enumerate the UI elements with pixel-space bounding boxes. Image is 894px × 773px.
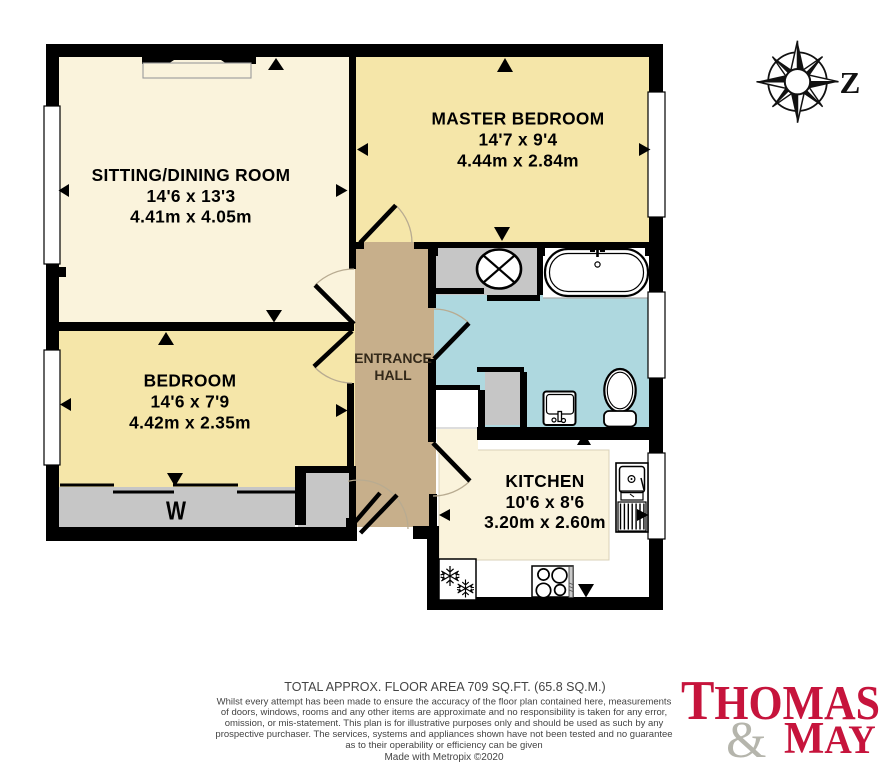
svg-text:MAY: MAY	[784, 714, 876, 763]
svg-text:MASTER BEDROOM: MASTER BEDROOM	[432, 109, 605, 129]
svg-text:KITCHEN: KITCHEN	[505, 471, 584, 491]
svg-text:3.20m x 2.60m: 3.20m x 2.60m	[484, 512, 606, 532]
svg-text:Made with Metropix ©2020: Made with Metropix ©2020	[384, 752, 504, 763]
svg-text:Z: Z	[840, 65, 861, 100]
svg-text:ENTRANCE: ENTRANCE	[354, 350, 432, 366]
svg-text:14'6 x 13'3: 14'6 x 13'3	[147, 186, 236, 206]
svg-text:BEDROOM: BEDROOM	[144, 371, 237, 391]
svg-text:prospective purchaser. The ser: prospective purchaser. The services, sys…	[215, 729, 672, 740]
svg-text:&: &	[726, 712, 766, 768]
svg-text:omission, or mis-statement. Th: omission, or mis-statement. This plan is…	[225, 718, 664, 729]
svg-text:14'7 x 9'4: 14'7 x 9'4	[479, 130, 558, 150]
svg-text:4.44m x 2.84m: 4.44m x 2.84m	[457, 151, 579, 171]
svg-text:HALL: HALL	[374, 367, 412, 383]
svg-text:10'6 x 8'6: 10'6 x 8'6	[506, 492, 585, 512]
svg-text:W: W	[166, 496, 186, 526]
svg-text:4.41m x 4.05m: 4.41m x 4.05m	[130, 207, 252, 227]
svg-text:SITTING/DINING ROOM: SITTING/DINING ROOM	[92, 165, 291, 185]
svg-text:Whilst every attempt has been: Whilst every attempt has been made to en…	[217, 696, 672, 707]
svg-text:4.42m x 2.35m: 4.42m x 2.35m	[129, 413, 251, 433]
svg-text:as to their operability or eff: as to their operability or efficiency ca…	[345, 740, 542, 751]
svg-text:TOTAL APPROX. FLOOR AREA 709 S: TOTAL APPROX. FLOOR AREA 709 SQ.FT. (65.…	[284, 680, 605, 694]
svg-text:of doors, windows, rooms and a: of doors, windows, rooms and any other i…	[221, 707, 667, 718]
svg-text:14'6 x 7'9: 14'6 x 7'9	[151, 392, 230, 412]
